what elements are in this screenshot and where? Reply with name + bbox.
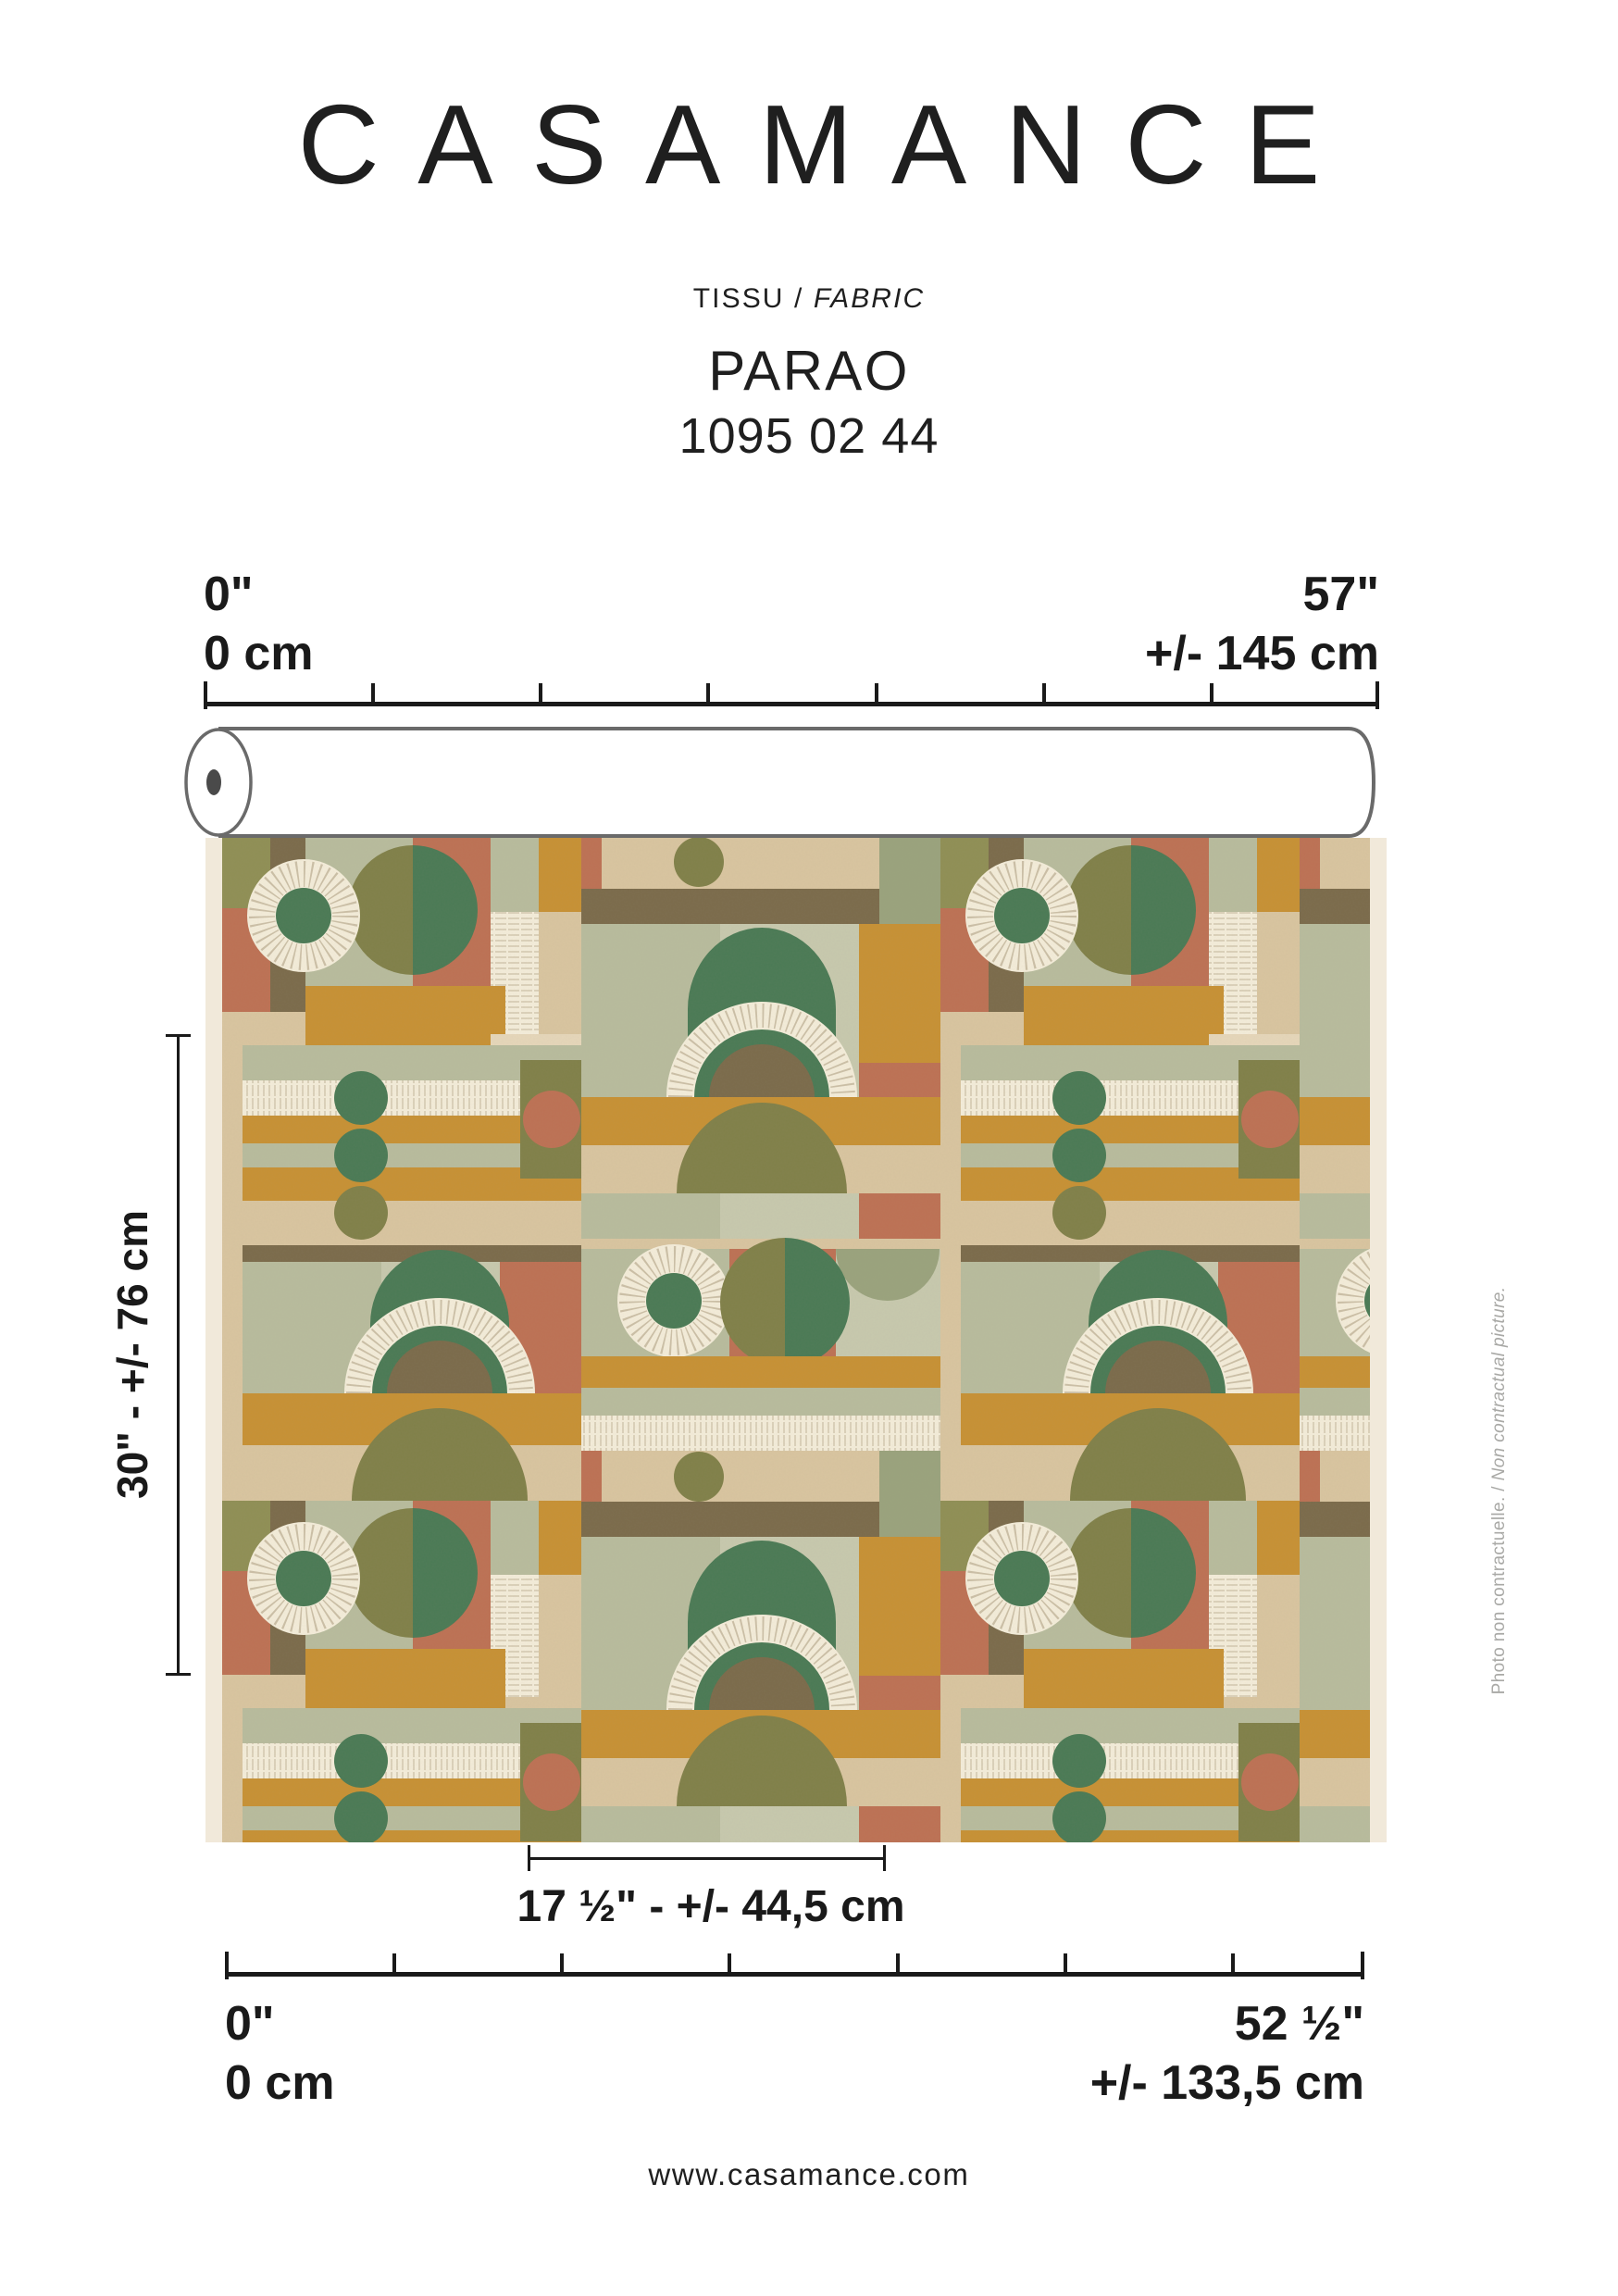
repeat-dimension-bar-right <box>883 1845 886 1871</box>
brand-logo: CASAMANCE <box>0 80 1618 209</box>
bottom-scale-left-inches: 0" <box>225 1994 335 2053</box>
ruler-tick <box>1064 1953 1067 1974</box>
fabric-pattern <box>222 838 1387 1842</box>
bottom-scale-left-cm: 0 cm <box>225 2053 335 2113</box>
product-category-en: FABRIC <box>814 283 925 314</box>
disclaimer-separator: / <box>1489 1480 1509 1496</box>
ruler-tick <box>1042 683 1046 704</box>
product-name: PARAO <box>0 339 1618 403</box>
ruler-tick <box>392 1953 396 1974</box>
website-link[interactable]: www.casamance.com <box>0 2157 1618 2192</box>
bottom-scale-right-inches: 52 ½" <box>1090 1994 1364 2053</box>
ruler-tick <box>539 683 542 704</box>
vertical-dimension-cap-top <box>166 1034 191 1037</box>
product-category: TISSU / FABRIC <box>0 283 1618 315</box>
ruler-tick <box>1375 681 1379 709</box>
roll-body <box>218 729 1374 836</box>
ruler-tick <box>875 683 878 704</box>
top-scale-right-inches: 57" <box>1145 565 1379 624</box>
ruler-tick <box>204 681 207 709</box>
bottom-scale-right-cm: +/- 133,5 cm <box>1090 2053 1364 2113</box>
ruler-line <box>204 702 1379 706</box>
category-separator: / <box>785 283 814 314</box>
ruler-tick <box>1361 1952 1364 1979</box>
ruler-tick <box>371 683 375 704</box>
product-reference: 1095 02 44 <box>0 407 1618 465</box>
ruler-tick <box>896 1953 900 1974</box>
top-scale-left-cm: 0 cm <box>204 624 314 683</box>
disclaimer-en: Non contractual picture. <box>1489 1287 1509 1481</box>
top-scale-left-labels: 0" 0 cm <box>204 565 314 683</box>
vertical-repeat-label: 30" - +/- 76 cm <box>107 1095 148 1614</box>
fabric-selvage-left <box>205 838 222 1842</box>
repeat-dimension-bar-left <box>528 1845 530 1871</box>
top-scale-left-inches: 0" <box>204 565 314 624</box>
bottom-scale-left-labels: 0" 0 cm <box>225 1994 335 2113</box>
ruler-tick <box>1231 1953 1235 1974</box>
top-scale-right-labels: 57" +/- 145 cm <box>1145 565 1379 683</box>
roll-core <box>206 769 221 795</box>
fabric-selvage-right <box>1370 838 1387 1842</box>
bottom-width-ruler <box>225 1947 1364 1977</box>
repeat-dimension-line <box>528 1857 886 1860</box>
bottom-scale-right-labels: 52 ½" +/- 133,5 cm <box>1090 1994 1364 2113</box>
ruler-tick <box>560 1953 564 1974</box>
top-width-ruler <box>204 677 1379 706</box>
product-category-fr: TISSU <box>693 283 785 314</box>
ruler-tick <box>728 1953 731 1974</box>
ruler-tick <box>706 683 710 704</box>
fabric-roll-illustration <box>180 725 1402 842</box>
ruler-tick <box>1210 683 1213 704</box>
disclaimer-fr: Photo non contractuelle. <box>1489 1496 1509 1694</box>
ruler-tick <box>225 1952 229 1979</box>
top-scale-right-cm: +/- 145 cm <box>1145 624 1379 683</box>
fabric-swatch <box>205 838 1387 1842</box>
vertical-dimension-cap-bottom <box>166 1673 191 1676</box>
horizontal-repeat-label: 17 ½" - +/- 44,5 cm <box>475 1881 947 1932</box>
spec-sheet-page: CASAMANCE TISSU / FABRIC PARAO 1095 02 4… <box>0 0 1618 2296</box>
photo-disclaimer: Photo non contractuelle. / Non contractu… <box>1489 1167 1513 1815</box>
vertical-dimension-line <box>177 1034 180 1676</box>
